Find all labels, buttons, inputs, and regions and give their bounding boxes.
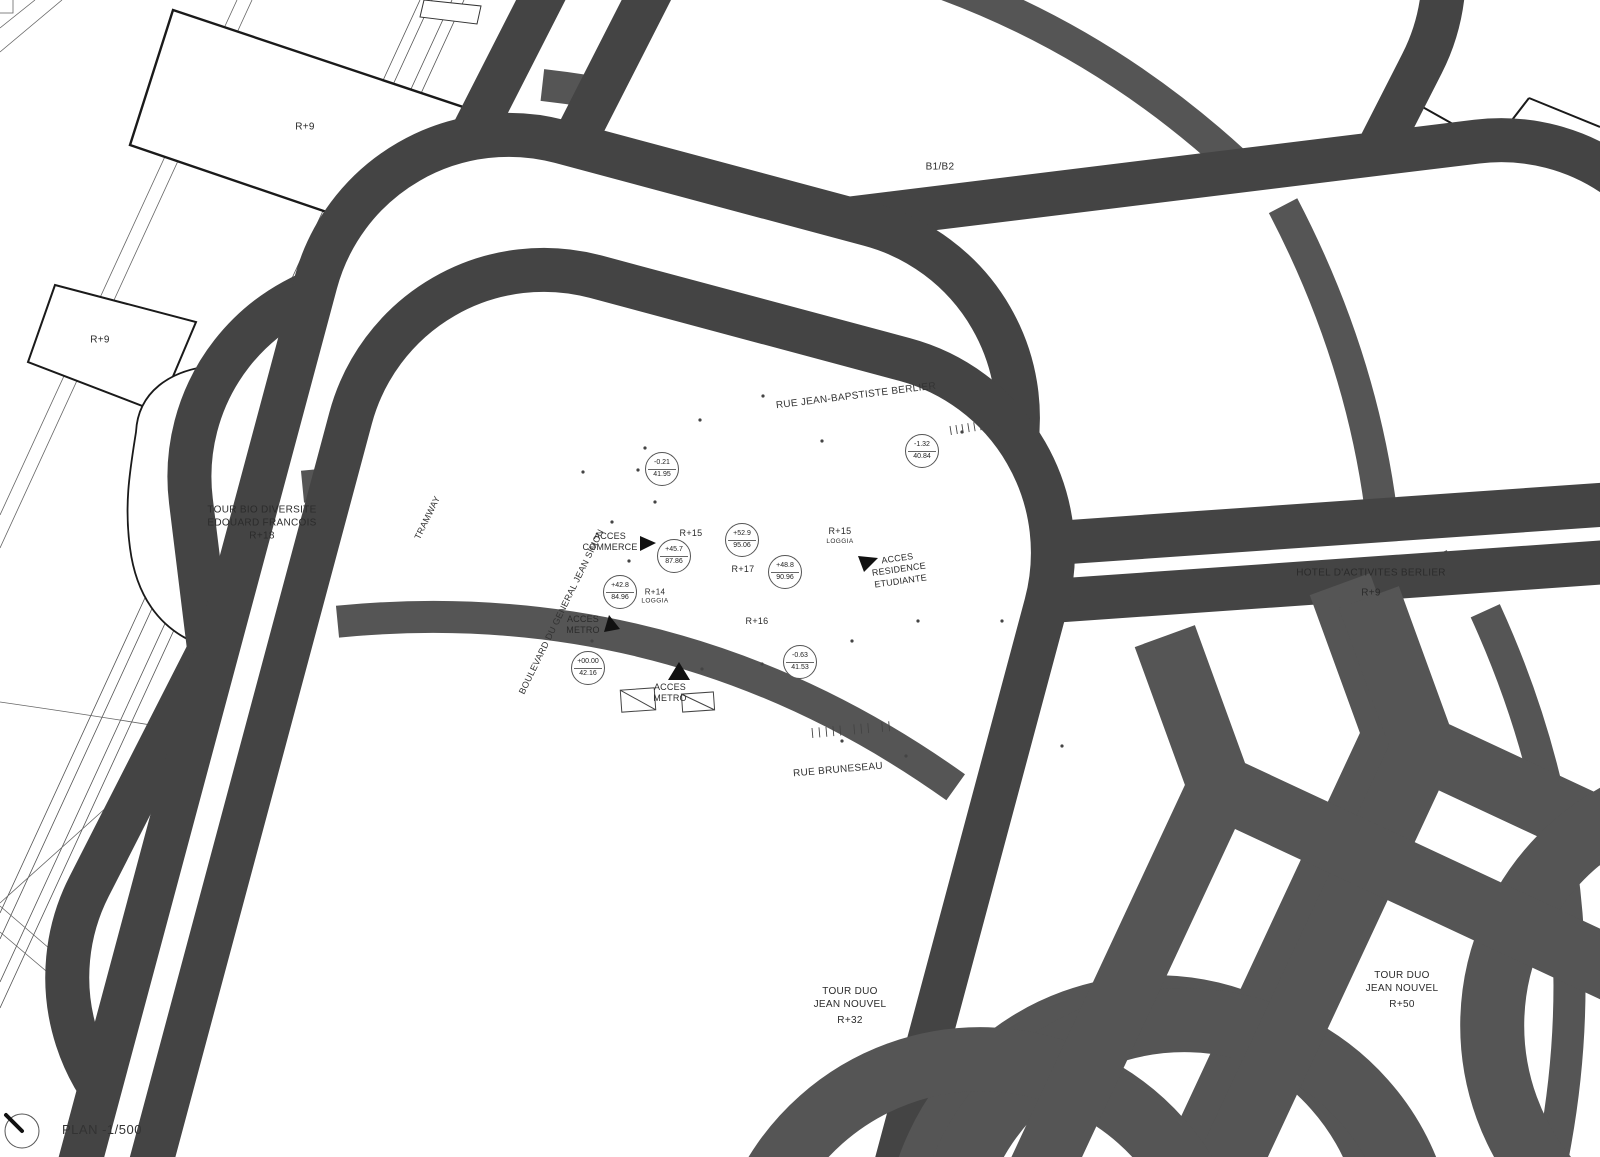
elevation-bottom: 41.95 — [648, 470, 676, 479]
project-label-r15: R+15 — [680, 528, 703, 540]
project-label-r16: R+16 — [746, 616, 769, 628]
project-label-r14-loggia: R+14 LOGGIA — [641, 588, 668, 607]
building-label-r9-west: R+9 — [90, 334, 110, 347]
building-label-tour-bio: TOUR BIO DIVERSITE EDOUARD FRANCOIS R+18 — [207, 504, 316, 543]
tour-bio-line1: TOUR BIO DIVERSITE — [207, 504, 316, 517]
elevation-top: +00.00 — [574, 658, 602, 668]
duo-se-line3: R+50 — [1389, 998, 1414, 1011]
duo-sw-line1: TOUR DUO — [822, 985, 878, 998]
elevation-marker-m6: +48.8 90.96 — [768, 555, 802, 589]
elevation-bottom: 87.86 — [660, 557, 688, 566]
elevation-marker-m4: +52.9 95.06 — [725, 523, 759, 557]
elevation-top: -0.63 — [786, 652, 814, 662]
access-label-commerce: ACCES COMMERCE — [582, 531, 637, 554]
elevation-bottom: 95.06 — [728, 541, 756, 550]
acces-metro-south-line2: METRO — [653, 693, 687, 704]
tour-bio-line3: R+18 — [249, 530, 274, 543]
project-label-r15-loggia: R+15 LOGGIA — [826, 526, 853, 546]
elevation-marker-m5: +42.8 84.96 — [603, 575, 637, 609]
building-label-duo-r50: TOUR DUO JEAN NOUVEL R+50 — [1366, 969, 1439, 1011]
elevation-marker-m7: +00.00 42.16 — [571, 651, 605, 685]
r15-loggia-line1: R+15 — [829, 526, 852, 538]
duo-se-line1: TOUR DUO — [1374, 969, 1430, 982]
elevation-top: -1.32 — [908, 441, 936, 451]
access-label-metro-west: ACCES METRO — [566, 614, 600, 637]
acces-metro-south-line1: ACCES — [654, 682, 686, 693]
plan-title: PLAN -1/500 — [62, 1122, 142, 1137]
building-label-b1b2: B1/B2 — [926, 161, 955, 174]
acces-commerce-line2: COMMERCE — [582, 542, 637, 553]
elevation-marker-m1: -0.21 41.95 — [645, 452, 679, 486]
elevation-bottom: 90.96 — [771, 573, 799, 582]
elevation-top: +48.8 — [771, 562, 799, 572]
elevation-bottom: 41.53 — [786, 663, 814, 672]
project-label-r17: R+17 — [732, 564, 755, 576]
tour-bio-line2: EDOUARD FRANCOIS — [207, 517, 316, 530]
building-annex — [420, 0, 481, 24]
hotel-line2: R+9 — [1361, 587, 1381, 600]
elevation-bottom: 40.84 — [908, 452, 936, 461]
duo-se-line2: JEAN NOUVEL — [1366, 982, 1439, 995]
r15-loggia-line2: LOGGIA — [826, 538, 853, 546]
elevation-marker-m2: -1.32 40.84 — [905, 434, 939, 468]
hotel-line1: HOTEL D'ACTIVITES BERLIER — [1296, 567, 1446, 580]
site-plan-page: { "plan": { "title": "PLAN -1/500" }, "s… — [0, 0, 1600, 1157]
building-label-hotel: HOTEL D'ACTIVITES BERLIER R+9 — [1296, 567, 1446, 600]
r14-loggia-line1: R+14 — [645, 588, 666, 598]
elevation-top: -0.21 — [648, 459, 676, 469]
acces-metro-west-line1: ACCES — [567, 614, 599, 625]
north-arrow — [5, 1114, 39, 1148]
acces-metro-west-line2: METRO — [566, 625, 600, 636]
access-label-metro-south: ACCES METRO — [653, 682, 687, 705]
acces-commerce-line1: ACCES — [594, 531, 626, 542]
duo-sw-line3: R+32 — [837, 1014, 862, 1027]
elevation-bottom: 42.16 — [574, 669, 602, 678]
elevation-bottom: 84.96 — [606, 593, 634, 602]
building-label-r9-northwest: R+9 — [295, 121, 315, 134]
elevation-top: +42.8 — [606, 582, 634, 592]
elevation-marker-m3: +45.7 87.86 — [657, 539, 691, 573]
building-label-duo-r32: TOUR DUO JEAN NOUVEL R+32 — [814, 985, 887, 1027]
duo-sw-line2: JEAN NOUVEL — [814, 998, 887, 1011]
elevation-top: +52.9 — [728, 530, 756, 540]
elevation-top: +45.7 — [660, 546, 688, 556]
r14-loggia-line2: LOGGIA — [641, 598, 668, 606]
elevation-marker-m8: -0.63 41.53 — [783, 645, 817, 679]
